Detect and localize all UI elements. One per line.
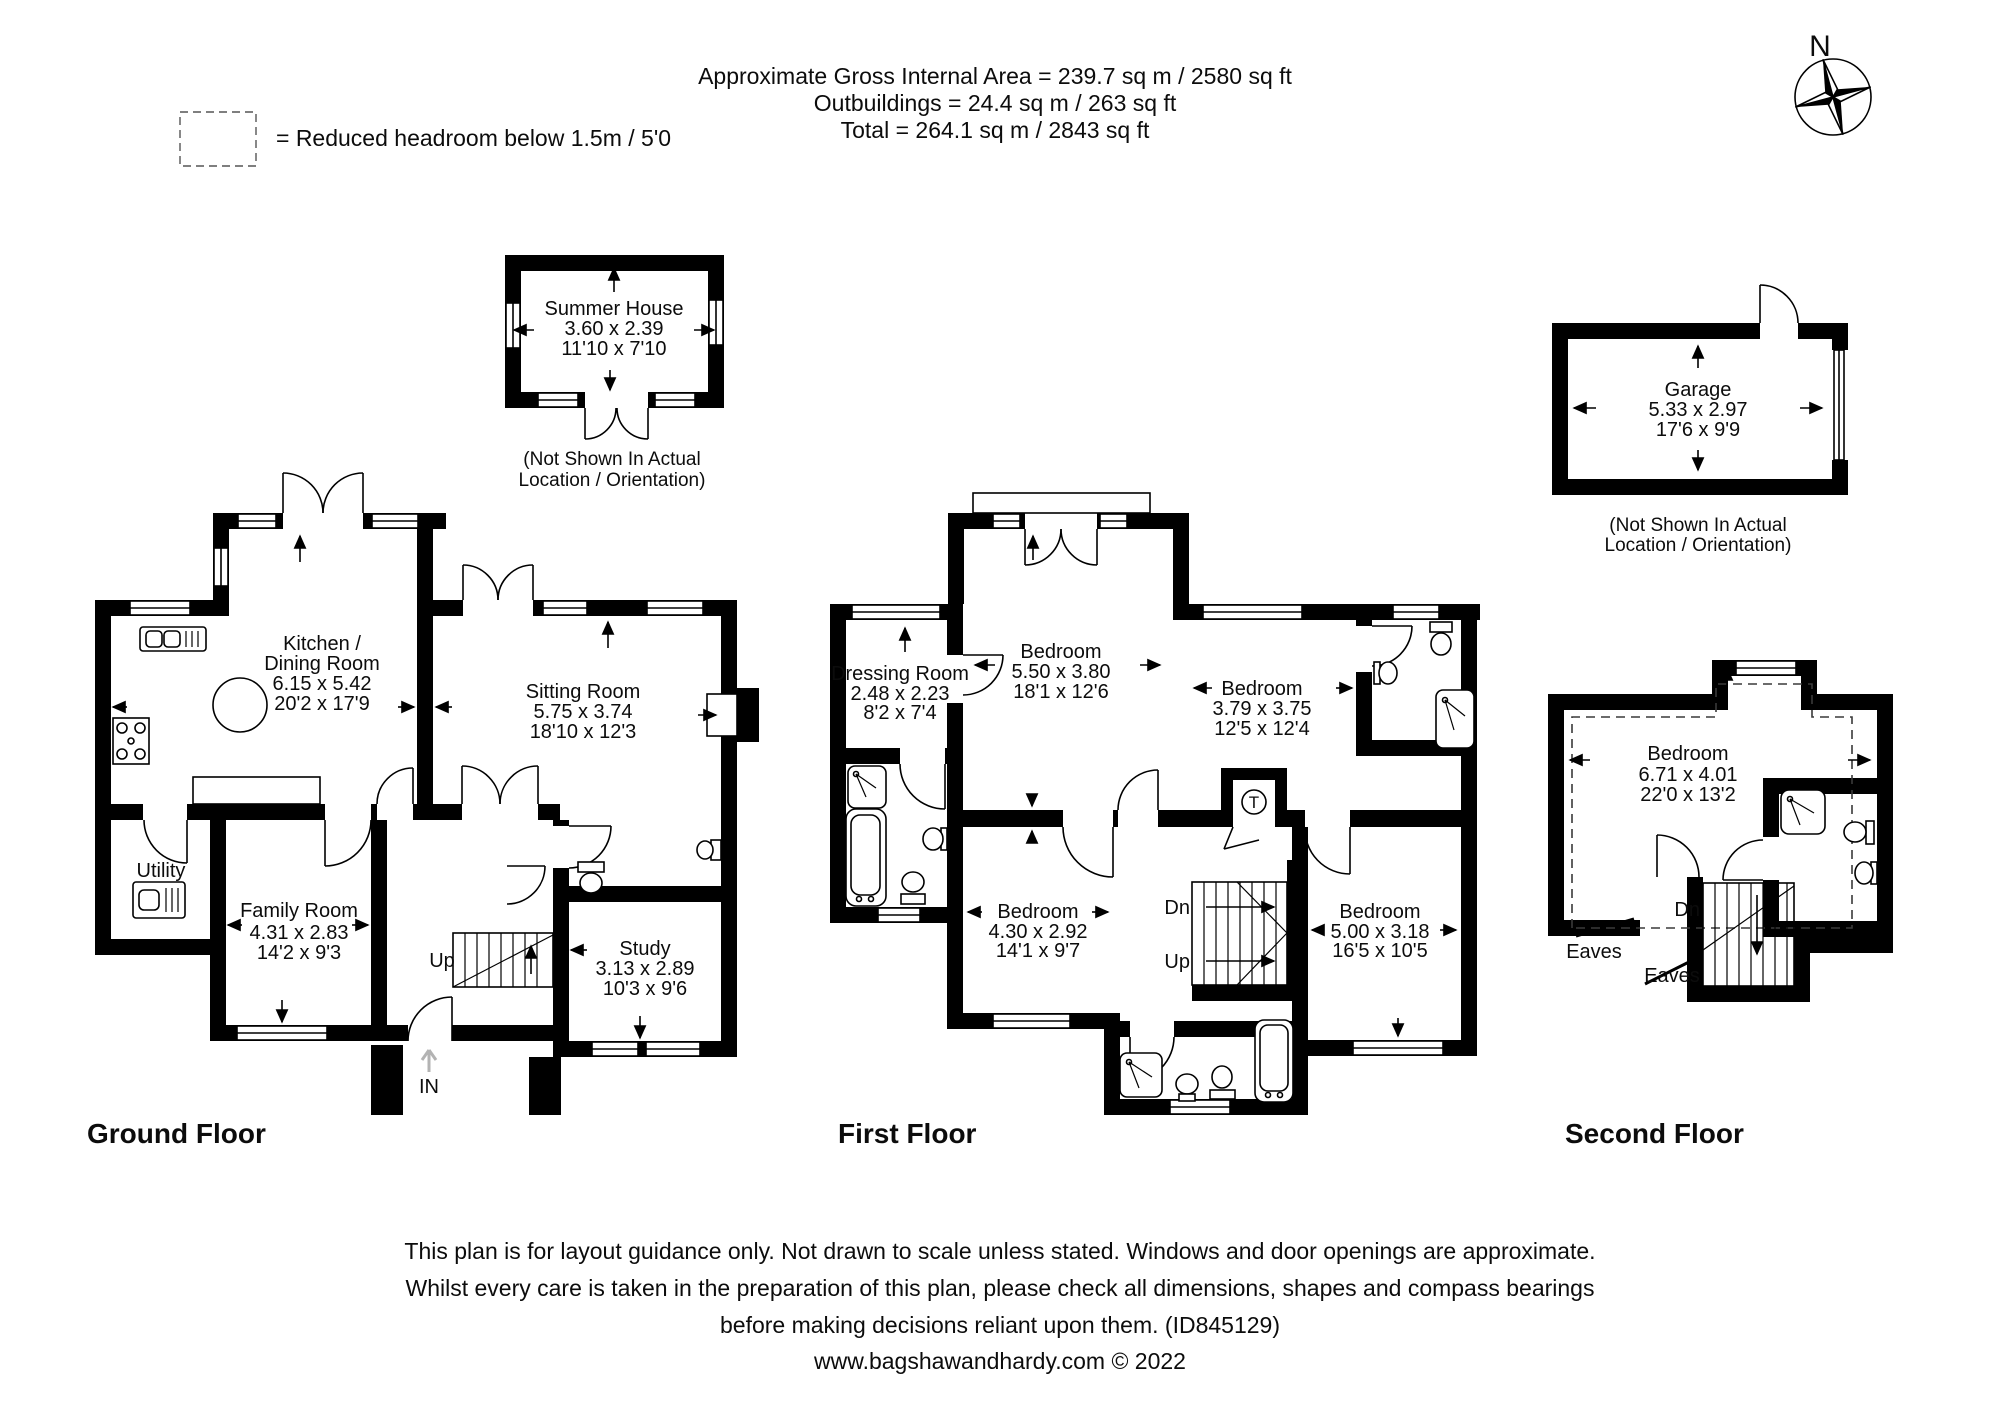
entrance-in-label: IN [419,1076,439,1098]
utility-fixtures [133,882,185,918]
compass-rose-icon: N [1795,30,1871,135]
kitchen-metric: 6.15 x 5.42 [273,673,372,695]
garage-side-door [1760,285,1798,323]
first-floor-bay-window [973,493,1150,513]
bedroom3-imperial: 14'1 x 9'7 [996,940,1080,962]
second-floor-doors [1657,835,1763,880]
garage-note-2: Location / Orientation) [1605,535,1792,556]
bedroom5-imperial: 22'0 x 13'2 [1640,784,1736,806]
kitchen-imperial: 20'2 x 17'9 [274,693,370,715]
study-name: Study [619,938,670,960]
garage-note-1: (Not Shown In Actual [1609,515,1786,536]
summer-house-note-2: Location / Orientation) [519,470,706,491]
ground-stairs-up-label: Up [429,950,455,972]
garage-imperial: 17'6 x 9'9 [1656,419,1740,441]
reduced-headroom-label: = Reduced headroom below 1.5m / 5'0 [276,125,671,151]
cloakroom-fixtures [578,840,721,893]
bedroom1-imperial: 18'1 x 12'6 [1013,681,1109,703]
ground-floor-title: Ground Floor [87,1118,266,1149]
kitchen-name-line2: Dining Room [264,653,380,675]
kitchen-island [213,678,267,732]
website-credit: www.bagshawandhardy.com © 2022 [813,1348,1186,1374]
second-floor-title: Second Floor [1565,1118,1744,1149]
sitting-room-metric: 5.75 x 3.74 [534,701,633,723]
bedroom4-imperial: 16'5 x 10'5 [1332,940,1428,962]
garage-metric: 5.33 x 2.97 [1649,399,1748,421]
bedroom2-name: Bedroom [1221,678,1302,700]
sitting-room-name: Sitting Room [526,681,641,703]
first-floor-walls [830,513,1480,1115]
disclaimer-line-1: This plan is for layout guidance only. N… [404,1238,1595,1264]
summer-house-name: Summer House [545,298,684,320]
family-room-name: Family Room [240,900,358,922]
eaves-label-2: Eaves [1644,965,1700,987]
second-stairs-dn-label: Dn [1674,899,1700,921]
first-floor-stairs [1192,882,1287,985]
airing-cupboard: T [1221,768,1287,849]
summer-house-plan: Summer House 3.60 x 2.39 11'10 x 7'10 (N… [505,255,724,491]
utility-label: Utility [137,860,186,882]
bedroom4-name: Bedroom [1339,901,1420,923]
second-floor-windows [1736,661,1796,675]
floorplan-page: Approximate Gross Internal Area = 239.7 … [0,0,2000,1413]
dressing-ensuite-fixtures [846,766,947,906]
gross-internal-area-text: Approximate Gross Internal Area = 239.7 … [698,63,1292,89]
family-room-imperial: 14'2 x 9'3 [257,942,341,964]
bedroom2-ensuite-fixtures [1374,622,1474,748]
reduced-headroom-swatch [180,112,256,166]
bedroom1-name: Bedroom [1020,641,1101,663]
disclaimer-line-2: Whilst every care is taken in the prepar… [406,1275,1595,1301]
eaves-label-1: Eaves [1566,941,1622,963]
bedroom2-metric: 3.79 x 3.75 [1213,698,1312,720]
compass-north-label: N [1809,30,1831,63]
first-floor-title: First Floor [838,1118,977,1149]
second-floor-plan: Bedroom 6.71 x 4.01 22'0 x 13'2 Dn Eaves… [1548,660,1893,1149]
summer-house-note-1: (Not Shown In Actual [523,449,700,470]
dressing-room-name: Dressing Room [831,663,969,685]
reduced-headroom-legend: = Reduced headroom below 1.5m / 5'0 [180,112,671,166]
tank-label: T [1249,793,1259,812]
summer-house-doors [585,408,648,439]
header-area-summary: Approximate Gross Internal Area = 239.7 … [698,63,1292,143]
disclaimer-line-3: before making decisions reliant upon the… [720,1312,1280,1338]
floorplan-canvas: Approximate Gross Internal Area = 239.7 … [0,0,2000,1413]
bedroom1-metric: 5.50 x 3.80 [1012,661,1111,683]
bedroom3-name: Bedroom [997,901,1078,923]
first-stairs-up-label: Up [1164,951,1190,973]
outbuildings-area-text: Outbuildings = 24.4 sq m / 263 sq ft [814,90,1177,116]
footer-disclaimer: This plan is for layout guidance only. N… [404,1238,1595,1374]
bedroom5-name: Bedroom [1647,743,1728,765]
garage-plan: Garage 5.33 x 2.97 17'6 x 9'9 (Not Shown… [1552,285,1848,556]
dressing-room-imperial: 8'2 x 7'4 [863,702,936,724]
first-stairs-dn-label: Dn [1164,897,1190,919]
first-floor-plan: T [830,493,1480,1149]
kitchen-name-line1: Kitchen / [283,633,361,655]
study-imperial: 10'3 x 9'6 [603,978,687,1000]
entrance-arrow-icon [422,1050,436,1072]
total-area-text: Total = 264.1 sq m / 2843 sq ft [841,117,1150,143]
second-floor-shower-room-fixtures [1781,790,1877,884]
study-metric: 3.13 x 2.89 [596,958,695,980]
garage-name: Garage [1665,379,1732,401]
bedroom2-imperial: 12'5 x 12'4 [1214,718,1310,740]
bedroom5-metric: 6.71 x 4.01 [1639,764,1738,786]
summer-house-imperial: 11'10 x 7'10 [561,338,666,360]
family-room-metric: 4.31 x 2.83 [250,922,349,944]
sitting-room-imperial: 18'10 x 12'3 [530,721,637,743]
summer-house-metric: 3.60 x 2.39 [565,318,664,340]
ground-floor-stairs [453,933,553,987]
ground-floor-plan: Kitchen / Dining Room 6.15 x 5.42 20'2 x… [87,473,759,1149]
